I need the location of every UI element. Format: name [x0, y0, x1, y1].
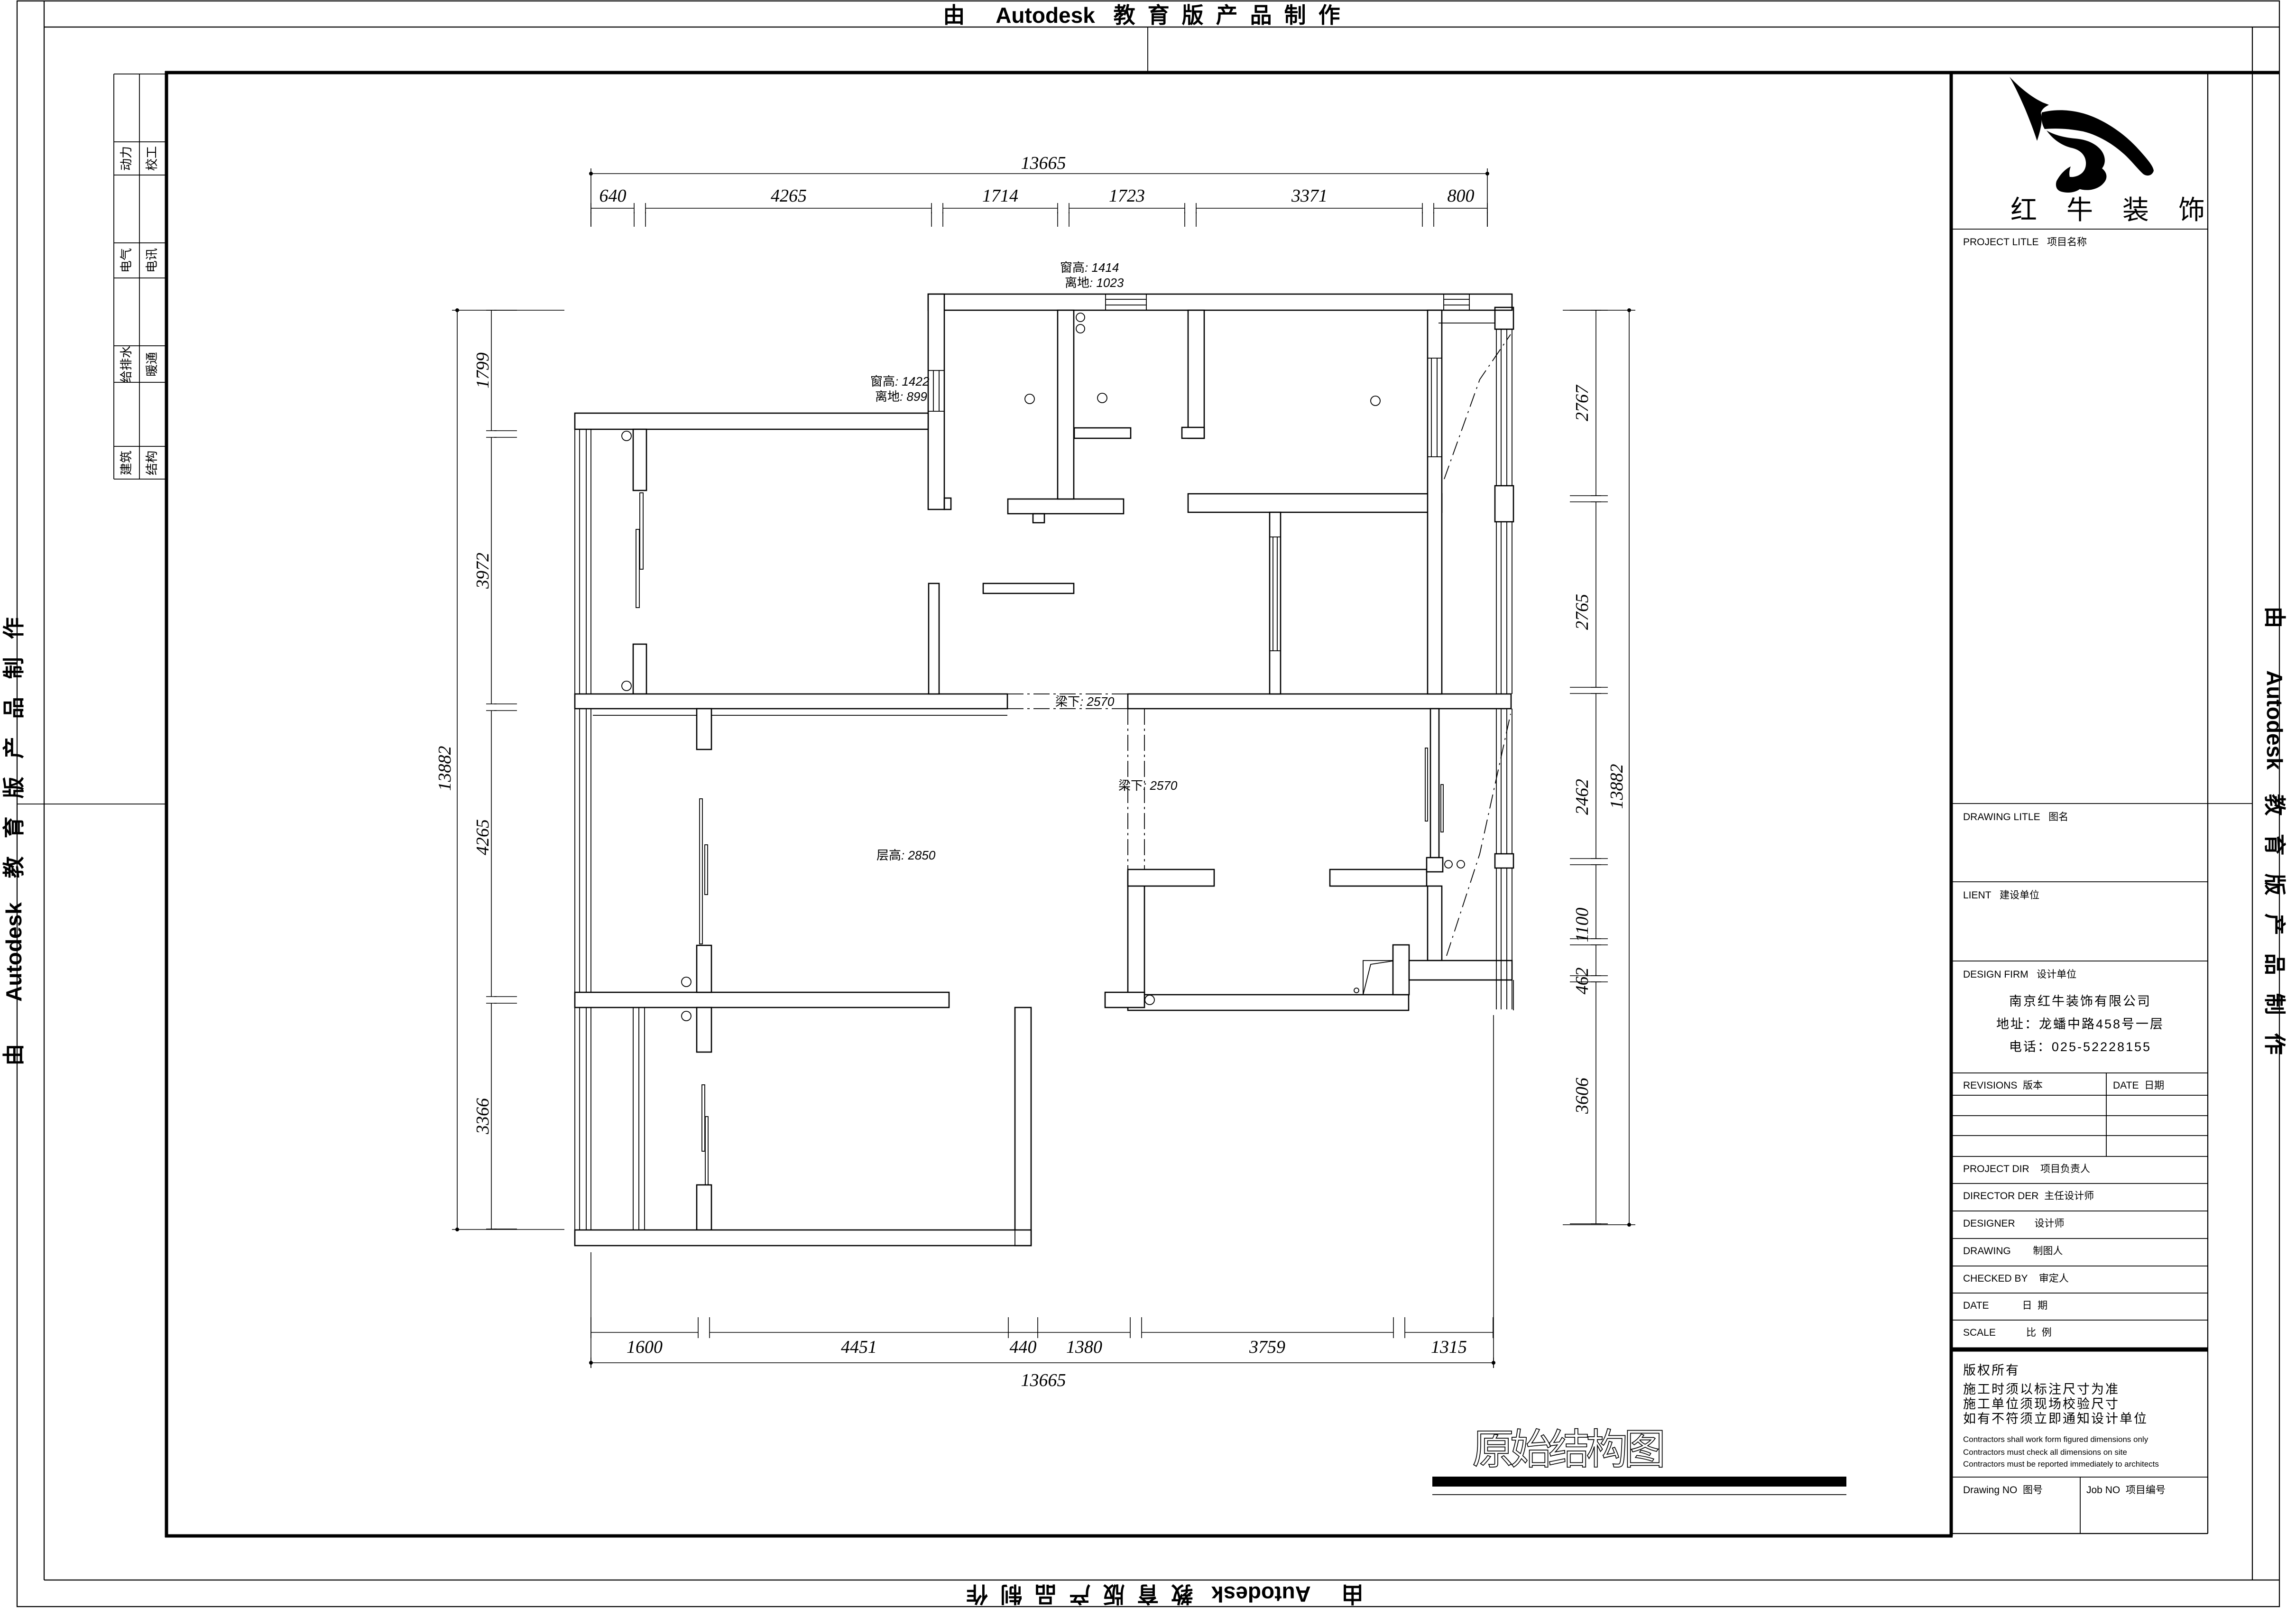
svg-text:3759: 3759 — [1249, 1337, 1285, 1357]
svg-text:3606: 3606 — [1572, 1078, 1592, 1114]
svg-text:462: 462 — [1572, 968, 1592, 995]
svg-text:13665: 13665 — [1021, 1370, 1066, 1390]
svg-text:如有不符须立即通知设计单位: 如有不符须立即通知设计单位 — [1963, 1412, 2148, 1426]
svg-text:给排水: 给排水 — [119, 346, 133, 383]
svg-text:南京红牛装饰有限公司: 南京红牛装饰有限公司 — [2009, 994, 2151, 1008]
svg-text:由 Autodesk 教育版产品制作: 由 Autodesk 教育版产品制作 — [954, 1582, 1363, 1607]
svg-text:校工: 校工 — [145, 146, 159, 171]
svg-text:1315: 1315 — [1431, 1337, 1467, 1357]
svg-text:建筑: 建筑 — [119, 451, 133, 475]
svg-text:Contractors must be reported i: Contractors must be reported immediately… — [1963, 1460, 2159, 1469]
svg-text:440: 440 — [1010, 1337, 1037, 1357]
svg-text:DIRECTOR DER 主任设计师: DIRECTOR DER 主任设计师 — [1963, 1191, 2094, 1201]
svg-text:4265: 4265 — [771, 186, 807, 206]
svg-text:窗高: 1422: 窗高: 1422 — [870, 374, 930, 388]
svg-text:2765: 2765 — [1572, 594, 1592, 630]
svg-text:4265: 4265 — [473, 819, 493, 855]
svg-text:电讯: 电讯 — [145, 248, 159, 273]
svg-text:动力: 动力 — [119, 146, 133, 171]
svg-text:13665: 13665 — [1021, 153, 1066, 173]
svg-text:由 Autodesk 教育版产品制作: 由 Autodesk 教育版产品制作 — [943, 3, 1352, 28]
svg-text:640: 640 — [599, 186, 627, 206]
svg-text:DATE 日 期: DATE 日 期 — [1963, 1300, 2047, 1311]
svg-text:PROJECT DIR 项目负责人: PROJECT DIR 项目负责人 — [1963, 1164, 2090, 1174]
svg-text:Drawing NO 图号: Drawing NO 图号 — [1963, 1485, 2043, 1496]
svg-text:2767: 2767 — [1572, 384, 1592, 421]
svg-text:CHECKED BY 审定人: CHECKED BY 审定人 — [1963, 1273, 2069, 1284]
svg-text:地址：龙蟠中路458号一层: 地址：龙蟠中路458号一层 — [1996, 1017, 2164, 1031]
svg-text:离地: 1023: 离地: 1023 — [1065, 276, 1124, 290]
svg-text:4451: 4451 — [841, 1337, 877, 1357]
svg-text:1799: 1799 — [473, 352, 493, 388]
svg-text:1600: 1600 — [627, 1337, 663, 1357]
svg-text:Contractors shall work form fi: Contractors shall work form figured dime… — [1963, 1435, 2148, 1444]
svg-text:PROJECT LITLE 项目名称: PROJECT LITLE 项目名称 — [1963, 237, 2087, 248]
svg-text:800: 800 — [1448, 186, 1475, 206]
svg-text:DRAWING 制图人: DRAWING 制图人 — [1963, 1246, 2063, 1257]
svg-text:SCALE 比 例: SCALE 比 例 — [1963, 1327, 2052, 1338]
svg-text:施工单位须现场校验尺寸: 施工单位须现场校验尺寸 — [1963, 1397, 2120, 1411]
svg-text:原始结构图: 原始结构图 — [1472, 1426, 1662, 1473]
svg-text:层高: 2850: 层高: 2850 — [876, 848, 936, 862]
svg-text:DATE 日期: DATE 日期 — [2113, 1080, 2164, 1091]
svg-text:13882: 13882 — [435, 746, 455, 791]
svg-text:3972: 3972 — [473, 553, 493, 589]
svg-text:3366: 3366 — [473, 1098, 493, 1135]
svg-text:电话：025-52228155: 电话：025-52228155 — [2009, 1040, 2151, 1054]
svg-text:由 Autodesk 教育版产品制作: 由 Autodesk 教育版产品制作 — [2262, 606, 2287, 1072]
svg-text:1714: 1714 — [982, 186, 1018, 206]
svg-text:1723: 1723 — [1109, 186, 1145, 206]
svg-text:LIENT 建设单位: LIENT 建设单位 — [1963, 890, 2039, 901]
svg-text:REVISIONS 版本: REVISIONS 版本 — [1963, 1080, 2043, 1091]
svg-text:13882: 13882 — [1607, 764, 1627, 809]
svg-text:窗高: 1414: 窗高: 1414 — [1060, 260, 1119, 275]
svg-text:梁下: 2570: 梁下: 2570 — [1118, 778, 1178, 793]
svg-text:结构: 结构 — [145, 451, 159, 475]
svg-text:2462: 2462 — [1572, 779, 1592, 815]
svg-text:梁下: 2570: 梁下: 2570 — [1055, 694, 1115, 709]
svg-text:版权所有: 版权所有 — [1963, 1363, 2020, 1377]
svg-text:DRAWING LITLE 图名: DRAWING LITLE 图名 — [1963, 812, 2068, 822]
svg-text:1100: 1100 — [1572, 907, 1592, 942]
svg-text:暖通: 暖通 — [145, 352, 159, 377]
svg-text:由 Autodesk 教育版产品制作: 由 Autodesk 教育版产品制作 — [1, 599, 26, 1065]
svg-text:DESIGNER 设计师: DESIGNER 设计师 — [1963, 1218, 2065, 1229]
svg-text:离地: 899: 离地: 899 — [875, 389, 927, 404]
svg-text:DESIGN FIRM 设计单位: DESIGN FIRM 设计单位 — [1963, 969, 2076, 980]
svg-text:1380: 1380 — [1066, 1337, 1102, 1357]
svg-text:Job NO 项目编号: Job NO 项目编号 — [2086, 1485, 2166, 1496]
svg-text:Contractors must check all dim: Contractors must check all dimensions on… — [1963, 1448, 2127, 1457]
svg-text:施工时须以标注尺寸为准: 施工时须以标注尺寸为准 — [1963, 1382, 2120, 1396]
svg-text:3371: 3371 — [1291, 186, 1328, 206]
svg-text:电气: 电气 — [119, 248, 133, 273]
